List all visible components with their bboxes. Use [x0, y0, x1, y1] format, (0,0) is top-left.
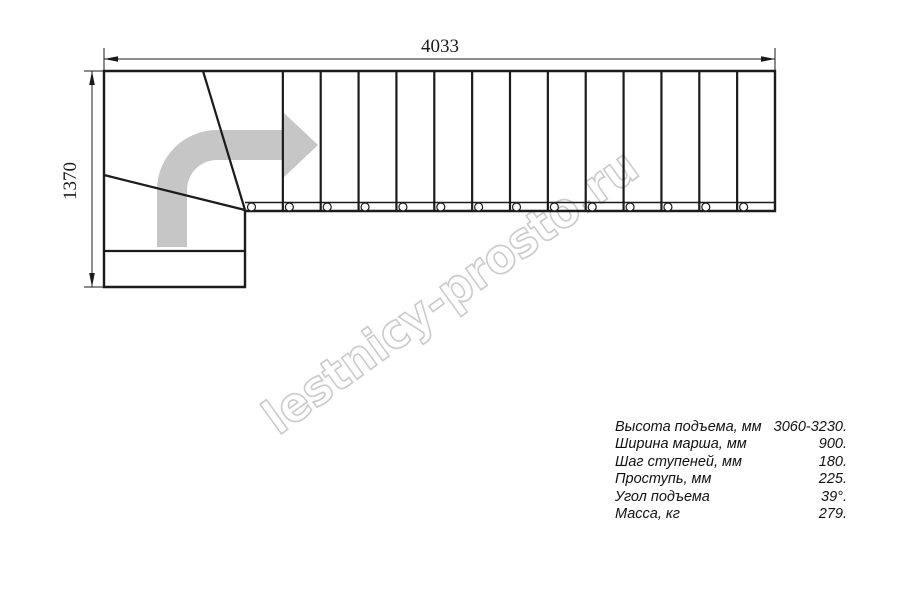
spec-row: Ширина марша, мм 900. [615, 436, 847, 453]
mount-circle [588, 203, 596, 211]
dimension-width-label: 4033 [421, 36, 459, 57]
spec-value: 39°. [821, 489, 847, 506]
spec-row: Проступь, мм 225. [615, 471, 847, 488]
spec-value: 279. [819, 506, 847, 523]
spec-label: Ширина марша, мм [615, 436, 747, 453]
spec-row: Угол подъема 39°. [615, 489, 847, 506]
tread-lines [248, 71, 748, 211]
spec-value: 180. [819, 454, 847, 471]
mount-circle [285, 203, 293, 211]
spec-value: 3060-3230. [774, 419, 847, 436]
mount-circle [475, 203, 483, 211]
spec-label: Масса, кг [615, 506, 680, 523]
mount-circle [437, 203, 445, 211]
dimension-height-label: 1370 [60, 162, 81, 200]
stair-outline [104, 71, 775, 287]
mount-circle [550, 203, 558, 211]
spec-label: Шаг ступеней, мм [615, 454, 742, 471]
arrowhead-left [104, 56, 118, 62]
direction-arrow [157, 112, 318, 247]
mount-circle [513, 203, 521, 211]
stair-plan-canvas: lestnicy-prosto.ru 4033 1370 [0, 0, 900, 600]
mount-circle [702, 203, 710, 211]
watermark-text: lestnicy-prosto.ru [253, 138, 649, 445]
arrowhead-right [761, 56, 775, 62]
spec-row: Шаг ступеней, мм 180. [615, 454, 847, 471]
spec-label: Угол подъема [615, 489, 710, 506]
mount-circle [323, 203, 331, 211]
mount-circle [740, 203, 748, 211]
spec-row: Высота подъема, мм 3060-3230. [615, 419, 847, 436]
dimension-height [84, 71, 104, 287]
arrowhead-bottom [89, 273, 95, 287]
spec-value: 225. [819, 471, 847, 488]
spec-row: Масса, кг 279. [615, 506, 847, 523]
stair-line-work [104, 71, 775, 287]
spec-table: Высота подъема, мм 3060-3230. Ширина мар… [615, 419, 847, 523]
mount-circle [361, 203, 369, 211]
spec-value: 900. [819, 436, 847, 453]
mount-circle [248, 203, 256, 211]
mount-circle [626, 203, 634, 211]
mount-circle [399, 203, 407, 211]
arrowhead-top [89, 71, 95, 85]
mount-circle [664, 203, 672, 211]
spec-label: Проступь, мм [615, 471, 711, 488]
spec-label: Высота подъема, мм [615, 419, 762, 436]
